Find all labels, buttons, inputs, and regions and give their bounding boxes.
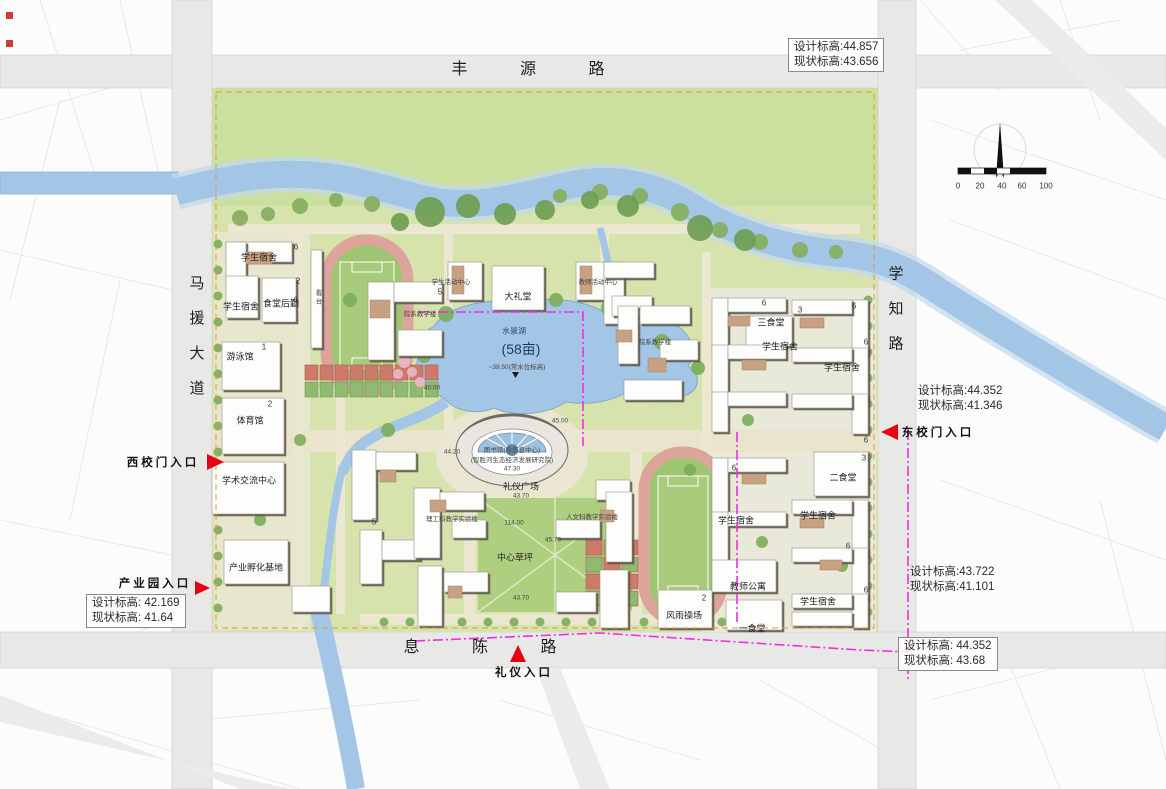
building-label-grandstand: 看台	[312, 290, 322, 307]
road-label-xuezhi: 学知路	[885, 266, 906, 371]
floors-note: 2	[702, 594, 706, 603]
floors-note: 3	[798, 306, 802, 315]
elevation-note: 设计标高:43.722现状标高:41.101	[910, 565, 994, 595]
spot-elevation: 43.70	[513, 595, 529, 602]
spot-elevation: 43.70	[513, 493, 529, 500]
scale-tick: 40	[998, 182, 1007, 191]
library-label: 图书馆(含信息中心)	[484, 444, 540, 454]
spot-elevation: 45.70	[545, 537, 561, 544]
ceremony-plaza-label: 礼仪广场	[503, 480, 539, 493]
scale-tick: 100	[1039, 182, 1052, 191]
floors-note: 3	[862, 454, 866, 463]
road-label-xichen: 息 陈 路	[404, 633, 581, 657]
building-label-hum-teaching: 人文科教学实验楼	[566, 511, 618, 521]
design-elevation: 设计标高:43.722	[910, 565, 994, 580]
building-label-teacher-apartment: 教师公寓	[730, 580, 766, 593]
floors-note: 6	[762, 299, 766, 308]
floors-note: 6	[846, 542, 850, 551]
building-label-canteen1: 一食堂	[738, 622, 765, 635]
lake-area-label: (58亩)	[502, 339, 541, 359]
floors-note: 6	[294, 243, 298, 252]
central-lawn-label: 中心草坪	[497, 551, 533, 564]
lake-level-label: ~39.50(常水位标高)	[489, 361, 546, 371]
current-elevation: 现状标高:43.656	[794, 55, 878, 70]
current-elevation: 现状标高: 43.68	[904, 654, 992, 669]
campus-master-plan: { "title": "校园总平面图", "colors": { "water"…	[0, 0, 1166, 789]
floors-note: 6	[864, 338, 868, 347]
scale-tick: 60	[1018, 182, 1027, 191]
floors-note: 6	[864, 436, 868, 445]
design-elevation: 设计标高:44.352	[918, 384, 1002, 399]
elevation-note: 设计标高:44.857现状标高:43.656	[788, 38, 884, 72]
west-gate-label: 西校门入口	[127, 454, 200, 470]
dim-note: 114.00	[504, 520, 523, 527]
building-label-sci-teaching: 理工科教学实验楼	[426, 513, 478, 523]
building-label-canteen3: 三食堂	[757, 316, 784, 329]
spot-elevation: 40.00	[424, 385, 440, 392]
floors-note: 6	[732, 464, 736, 473]
lake-name-label: 水景湖	[502, 326, 526, 337]
road-label-fengyuan: 丰 源 路	[452, 55, 629, 79]
scale-tick: 20	[976, 182, 985, 191]
elevation-note: 设计标高: 44.352现状标高: 43.68	[898, 637, 998, 671]
current-elevation: 现状标高:41.346	[918, 399, 1002, 414]
building-label-dept-teaching: 院系教学楼	[404, 308, 437, 318]
building-label-gymnasium: 体育馆	[236, 414, 263, 427]
design-elevation: 设计标高:44.857	[794, 40, 878, 55]
building-label-incubator: 产业孵化基地	[229, 561, 283, 574]
building-label-dept-teaching: 院系教学楼	[639, 336, 672, 346]
road-label-mayuan: 马援大道	[186, 275, 207, 415]
spot-elevation: 45.00	[552, 418, 568, 425]
floors-note: 1	[262, 343, 266, 352]
design-elevation: 设计标高: 42.169	[92, 596, 180, 611]
industry-gate-label: 产业园入口	[119, 575, 192, 591]
building-label-canteen2: 二食堂	[829, 471, 856, 484]
building-label-dorm: 学生宿舍	[800, 595, 836, 608]
building-label-dorm: 学生宿舍	[241, 251, 277, 264]
elevation-note: 设计标高:44.352现状标高:41.346	[918, 384, 1002, 414]
building-label-dorm: 学生宿舍	[800, 509, 836, 522]
building-label-academic-exchange: 学术交流中心	[222, 474, 276, 487]
floors-note: 6	[852, 302, 856, 311]
building-label-natatorium: 游泳馆	[226, 350, 253, 363]
spot-elevation: 47.30	[504, 466, 520, 473]
building-label-teacher-activity: 教师活动中心	[579, 276, 618, 286]
design-elevation: 设计标高: 44.352	[904, 639, 992, 654]
current-elevation: 现状标高:41.101	[910, 580, 994, 595]
institute-label: (智胜河生态经济发展研究院)	[471, 454, 553, 464]
building-label-auditorium: 大礼堂	[504, 290, 531, 303]
building-label-sports-hall: 风雨操场	[666, 609, 702, 622]
building-label-dorm: 学生宿舍	[223, 300, 259, 313]
floors-note: 5	[438, 288, 442, 297]
east-gate-label: 东校门入口	[902, 424, 975, 440]
floors-note: 6	[294, 296, 298, 305]
floors-note: 2	[268, 400, 272, 409]
floors-note: 5	[372, 518, 376, 527]
building-label-dorm: 学生宿舍	[762, 340, 798, 353]
floors-note: 2	[296, 277, 300, 286]
floors-note: 6	[864, 586, 868, 595]
building-label-dorm: 学生宿舍	[824, 361, 860, 374]
current-elevation: 现状标高: 41.64	[92, 611, 180, 626]
building-label-dorm: 学生宿舍	[718, 514, 754, 527]
spot-elevation: 44.20	[444, 449, 460, 456]
label-layer: 丰 源 路马援大道学知路息 陈 路西校门入口东校门入口产业园入口礼仪入口水景湖(…	[0, 0, 1166, 789]
scale-tick: 0	[956, 182, 960, 191]
ceremony-gate-label: 礼仪入口	[495, 664, 553, 680]
building-label-student-activity: 学生活动中心	[432, 276, 471, 286]
elevation-note: 设计标高: 42.169现状标高: 41.64	[86, 594, 186, 628]
